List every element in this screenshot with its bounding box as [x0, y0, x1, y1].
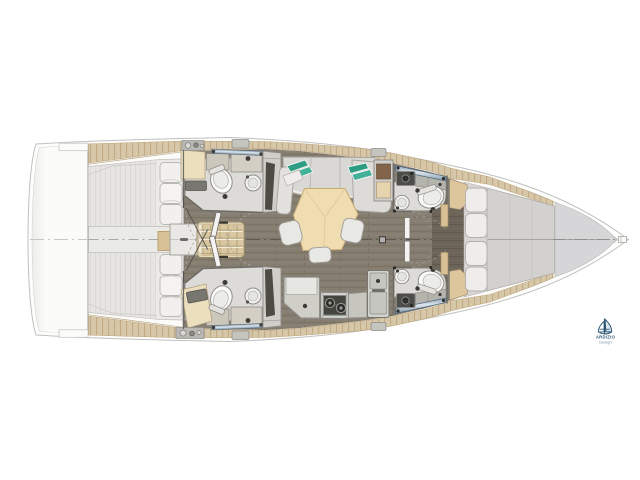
svg-text:Design: Design: [599, 340, 611, 345]
